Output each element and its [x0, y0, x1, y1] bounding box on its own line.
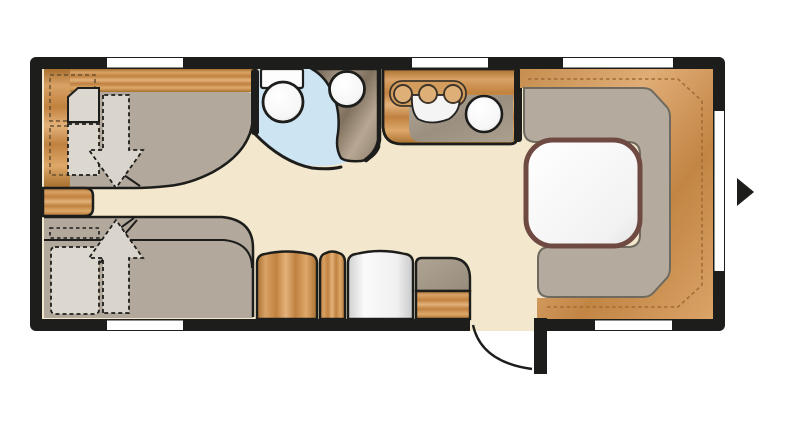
- entry-direction-arrow: [737, 178, 754, 206]
- toilet-bowl: [263, 82, 303, 122]
- kitchen-sink: [466, 96, 502, 132]
- door-swing-arc: [473, 325, 532, 369]
- bathroom-partition-left: [251, 69, 259, 135]
- washbasin: [330, 72, 365, 107]
- window-top-kitchen: [412, 58, 488, 68]
- storage-units: [257, 251, 470, 319]
- wood-cabinet-narrow: [320, 252, 345, 320]
- window-bottom-bedroom: [107, 321, 183, 331]
- kitchen-area: [383, 69, 522, 144]
- wood-cabinet-wide: [257, 252, 317, 320]
- window-rear-wall: [715, 111, 725, 271]
- burner-right: [444, 85, 462, 103]
- floor-plan-canvas: caravan-floor-plan: [0, 0, 793, 437]
- window-top-bedroom: [107, 58, 183, 68]
- dining-table: [526, 140, 640, 246]
- door-opening: [470, 318, 537, 331]
- bed-head-wood-column: [44, 69, 70, 187]
- window-bottom-lounge: [595, 321, 672, 331]
- burner-middle: [419, 85, 437, 103]
- tall-white-unit: [348, 251, 413, 319]
- entry-step-unit-base: [416, 291, 470, 319]
- entrance-door-leaf: [534, 318, 547, 374]
- bedside-drawer: [43, 188, 93, 216]
- burner-left: [394, 85, 412, 103]
- pillow-top-bed: [68, 88, 99, 122]
- window-top-lounge: [563, 58, 673, 68]
- floor-plan-figure: caravan-floor-plan: [0, 0, 793, 437]
- entry-step-unit-top: [416, 258, 470, 291]
- lounge-area: [520, 69, 713, 319]
